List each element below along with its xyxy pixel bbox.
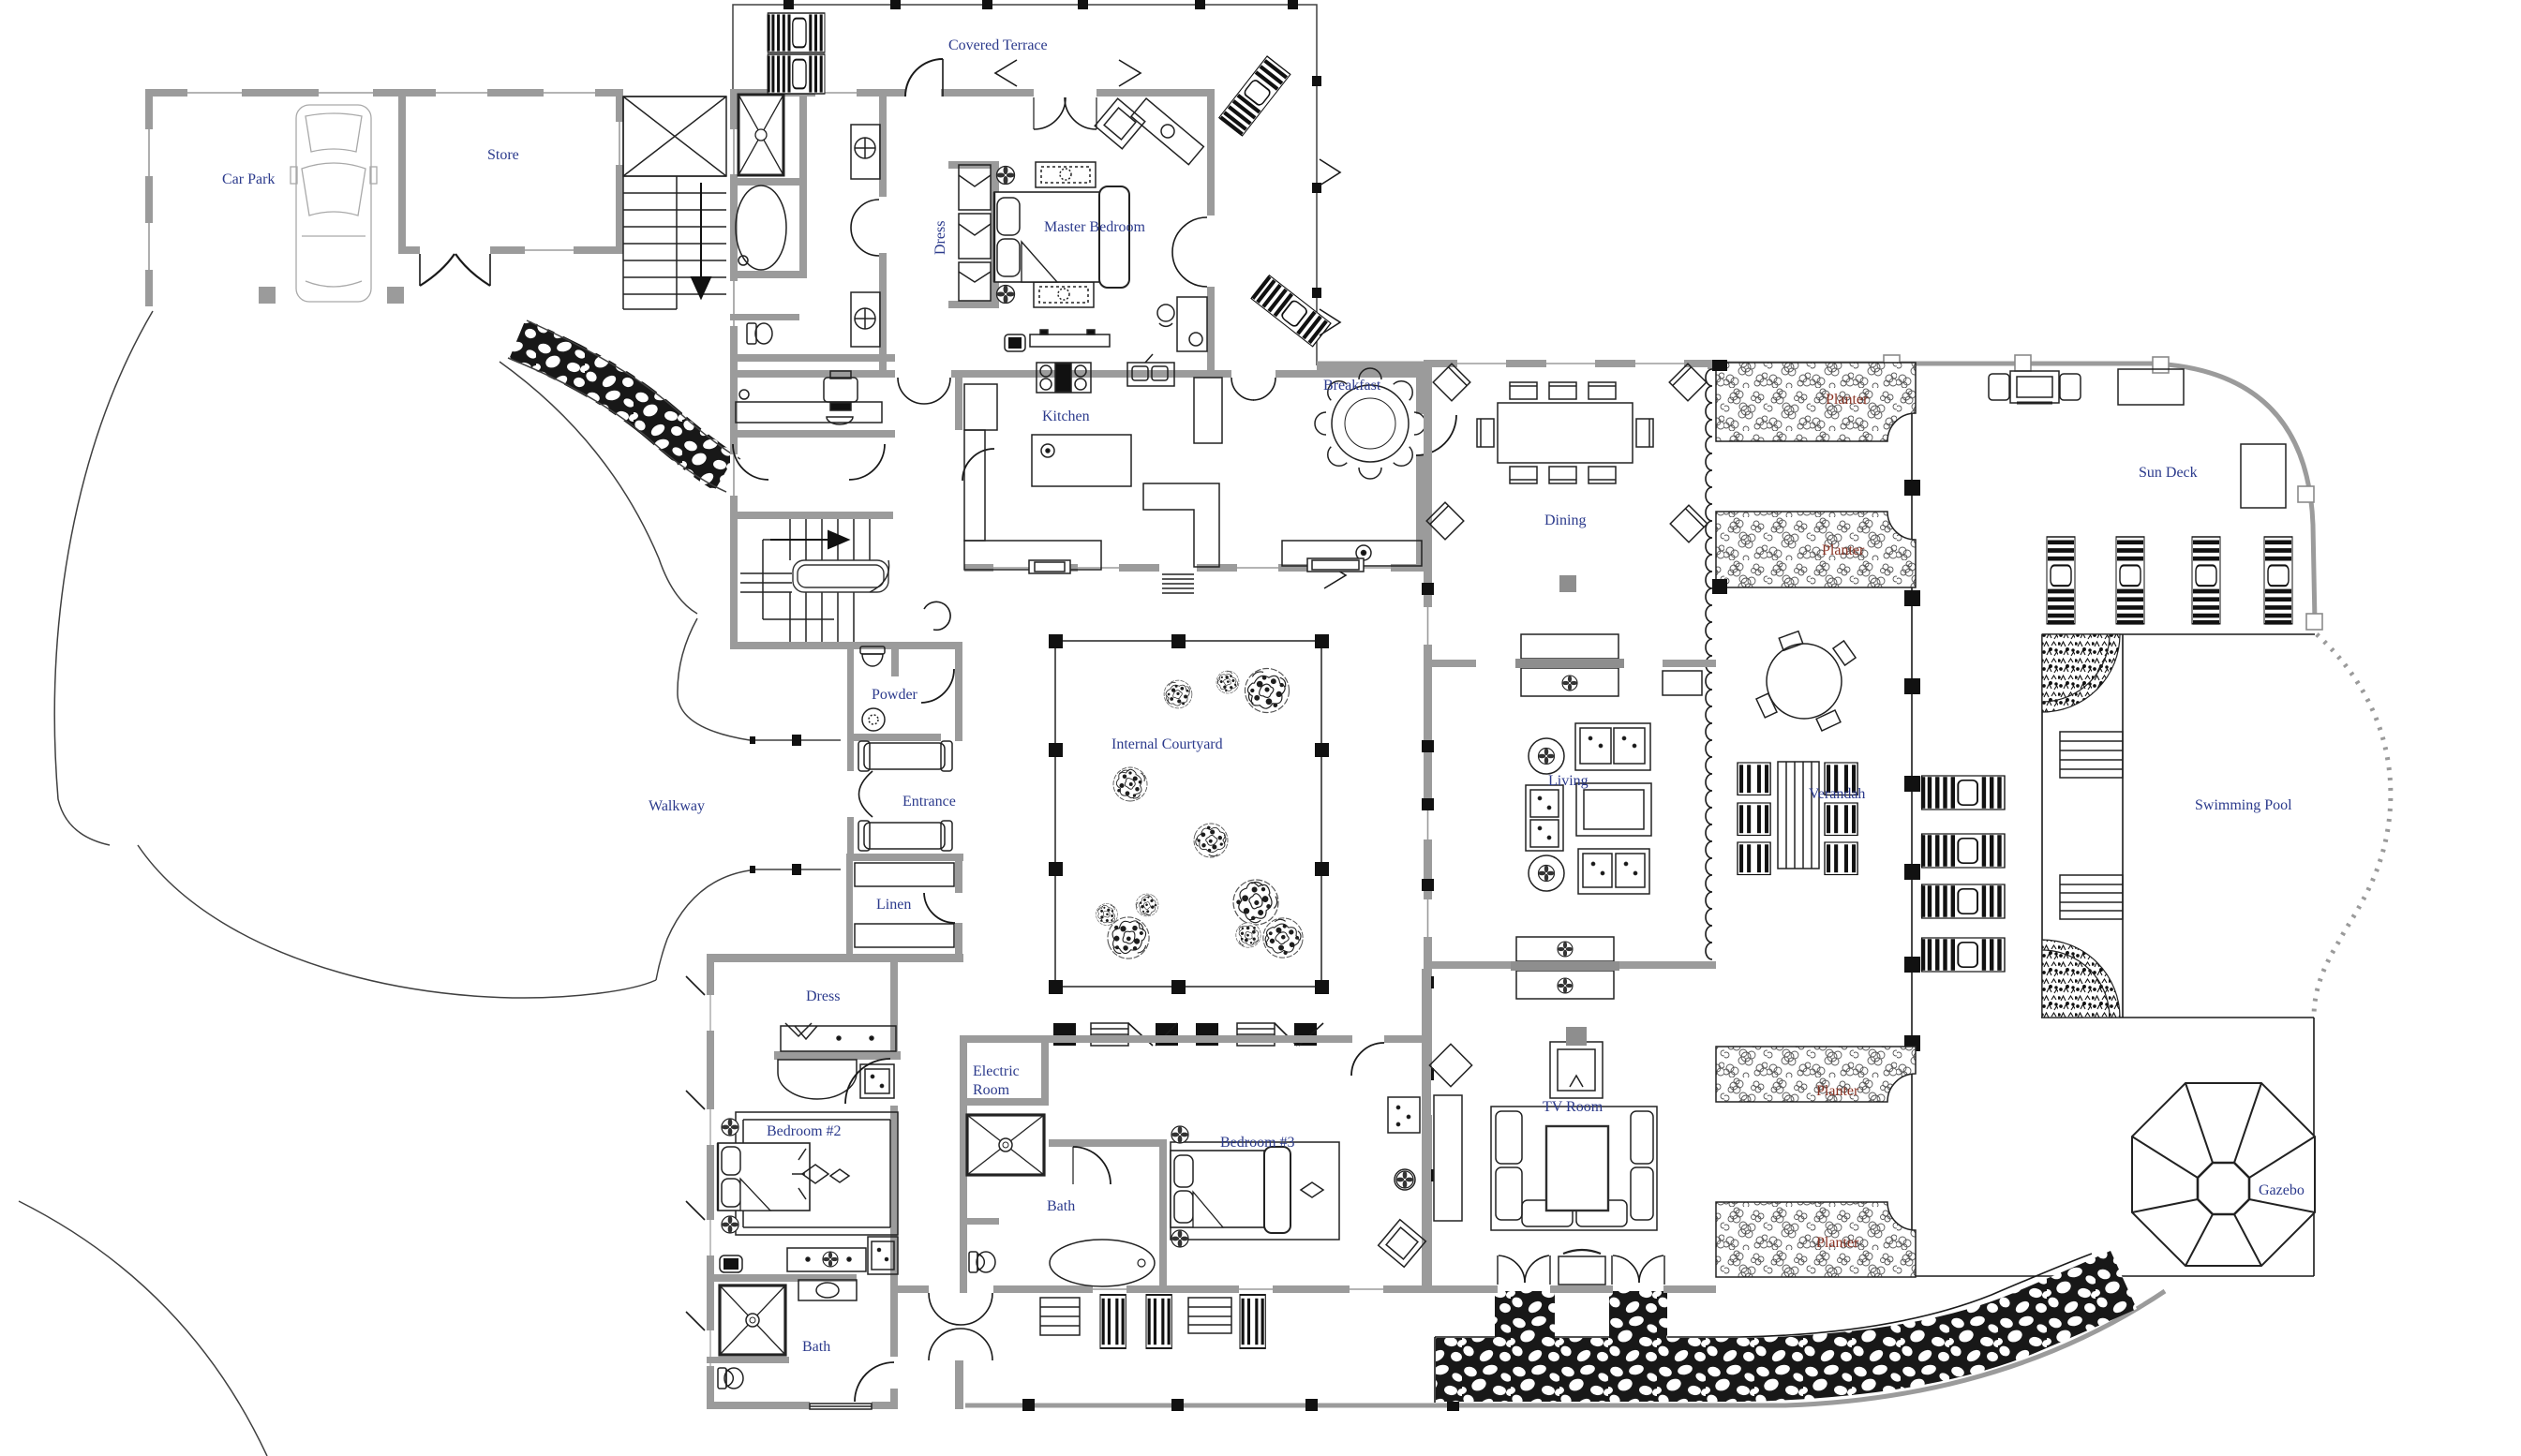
svg-text:Car Park: Car Park (222, 171, 275, 187)
svg-text:Planter: Planter (1826, 392, 1869, 408)
svg-text:Gazebo: Gazebo (2259, 1182, 2305, 1198)
svg-text:TV Room: TV Room (1543, 1099, 1604, 1115)
svg-text:Planter: Planter (1822, 542, 1865, 558)
svg-text:Internal Courtyard: Internal Courtyard (1111, 736, 1223, 752)
svg-text:Bath: Bath (1047, 1198, 1075, 1214)
svg-text:Planter: Planter (1816, 1083, 1859, 1099)
svg-text:Walkway: Walkway (649, 798, 705, 814)
svg-text:Sun Deck: Sun Deck (2139, 465, 2198, 481)
svg-text:Entrance: Entrance (902, 794, 956, 810)
svg-text:Breakfast: Breakfast (1323, 378, 1381, 394)
svg-text:Bedroom #3: Bedroom #3 (1220, 1135, 1295, 1151)
svg-text:Room: Room (973, 1082, 1010, 1098)
svg-text:Linen: Linen (876, 897, 911, 913)
svg-text:Powder: Powder (872, 687, 918, 703)
svg-text:Electric: Electric (973, 1063, 1020, 1079)
svg-text:Dress: Dress (932, 221, 948, 255)
svg-text:Covered Terrace: Covered Terrace (948, 37, 1048, 53)
svg-text:Dining: Dining (1544, 513, 1586, 528)
svg-text:Dress: Dress (806, 988, 840, 1004)
svg-text:Kitchen: Kitchen (1042, 409, 1090, 424)
svg-text:Planter: Planter (1816, 1235, 1859, 1251)
svg-text:Living: Living (1548, 773, 1589, 789)
svg-text:Swimming Pool: Swimming Pool (2195, 797, 2292, 813)
svg-text:Master Bedroom: Master Bedroom (1044, 219, 1146, 235)
svg-text:Store: Store (487, 147, 519, 163)
svg-text:Verandah: Verandah (1809, 786, 1865, 802)
svg-text:Bedroom #2: Bedroom #2 (767, 1123, 842, 1139)
svg-text:Bath: Bath (802, 1339, 830, 1355)
